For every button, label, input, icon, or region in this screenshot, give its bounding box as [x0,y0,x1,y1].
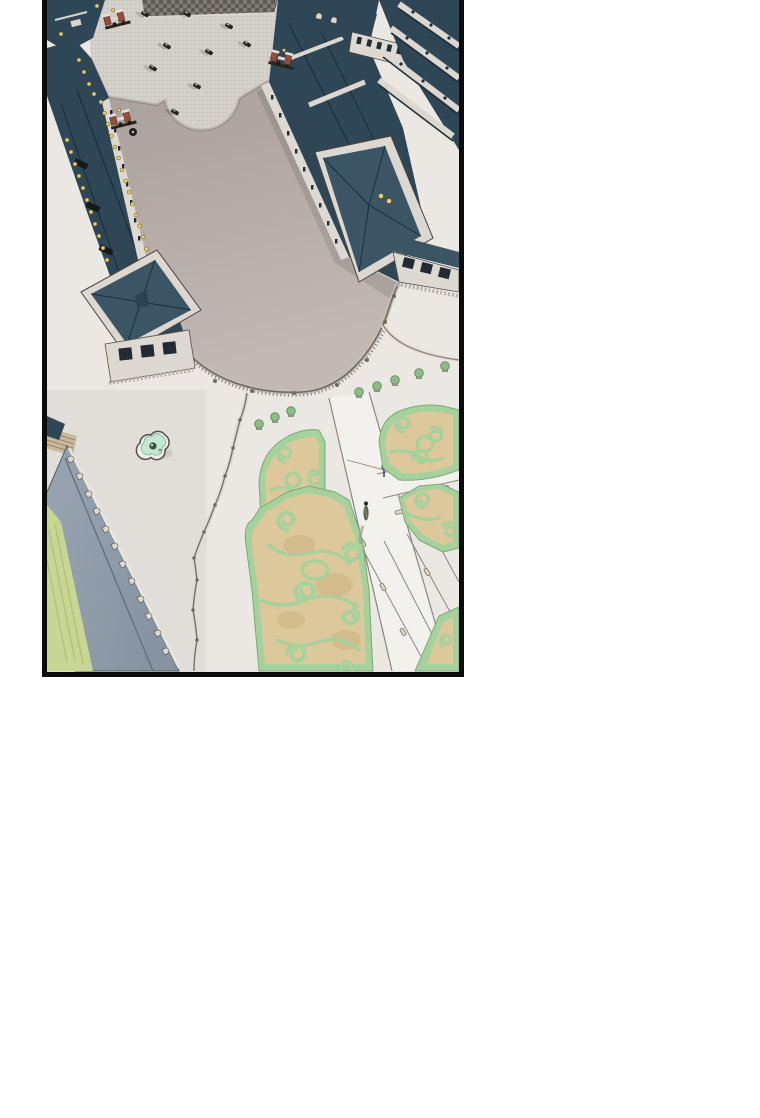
page-background: { "page": { "background": "#ffffff" }, "… [0,0,760,1118]
parterre-bed-2 [379,405,459,480]
webtoon-panel [42,0,464,677]
parterre-bed-3 [245,486,373,672]
palace-aerial-scene [47,0,459,672]
